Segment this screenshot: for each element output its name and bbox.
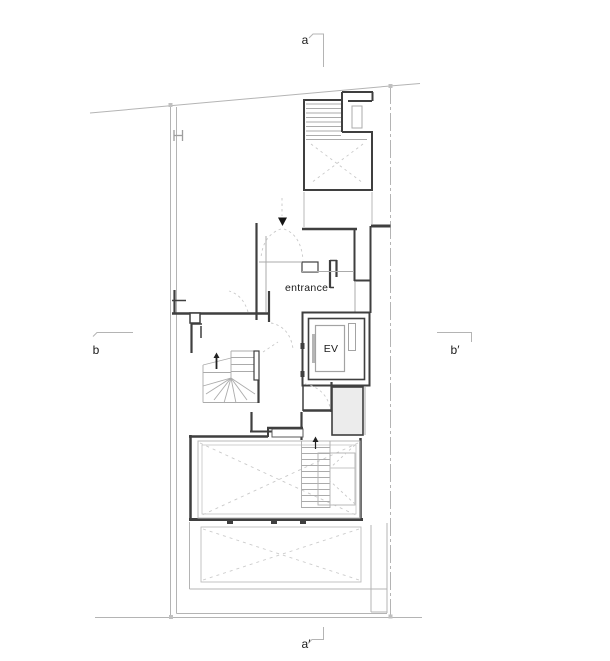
canopy-outline xyxy=(201,527,361,582)
block-connector-lines xyxy=(304,192,372,227)
lower-door-swing xyxy=(305,384,330,407)
entry-direction-arrow xyxy=(278,218,287,227)
section-a-prime-label: a′ xyxy=(302,637,312,651)
storage-room xyxy=(332,387,363,435)
section-b-bracket xyxy=(93,333,133,337)
roof-landing-void-cross xyxy=(311,144,363,183)
floor-plan-canvas: a a′ b b′ xyxy=(0,0,610,661)
roof-stair-door xyxy=(352,106,362,128)
carport-canopy xyxy=(190,522,388,613)
elevator-shaft: EV xyxy=(303,313,370,386)
main-stair xyxy=(302,437,356,509)
floor-plan-svg: a a′ b b′ xyxy=(0,0,610,661)
section-a-bracket xyxy=(309,34,324,67)
section-a-label: a xyxy=(302,33,309,47)
stair-side-door xyxy=(254,351,259,380)
section-b-prime-bracket xyxy=(437,333,472,343)
boundary-line-north xyxy=(90,84,420,114)
section-marker-b: b xyxy=(93,333,133,358)
elevator-label: EV xyxy=(324,343,339,355)
floor-edge-lines xyxy=(259,236,355,312)
utility-pole-icon xyxy=(174,130,183,141)
section-marker-a-prime: a′ xyxy=(302,627,324,651)
roof-stair-treads xyxy=(306,104,367,140)
pillar-block xyxy=(190,313,200,323)
lower-void-room xyxy=(189,427,363,524)
canopy-cross xyxy=(203,529,359,580)
void-outline-outer xyxy=(198,441,360,518)
section-marker-b-prime: b′ xyxy=(437,333,472,358)
bench-box xyxy=(272,429,303,437)
section-marker-a: a xyxy=(302,33,324,67)
roof-stair-enclosure xyxy=(303,92,373,227)
entry-step-box xyxy=(302,262,318,272)
section-b-prime-label: b′ xyxy=(451,343,461,357)
winding-stair xyxy=(203,342,278,403)
void-outline-inner xyxy=(202,445,356,514)
section-b-label: b xyxy=(93,343,100,357)
entrance-label: entrance xyxy=(285,282,328,294)
